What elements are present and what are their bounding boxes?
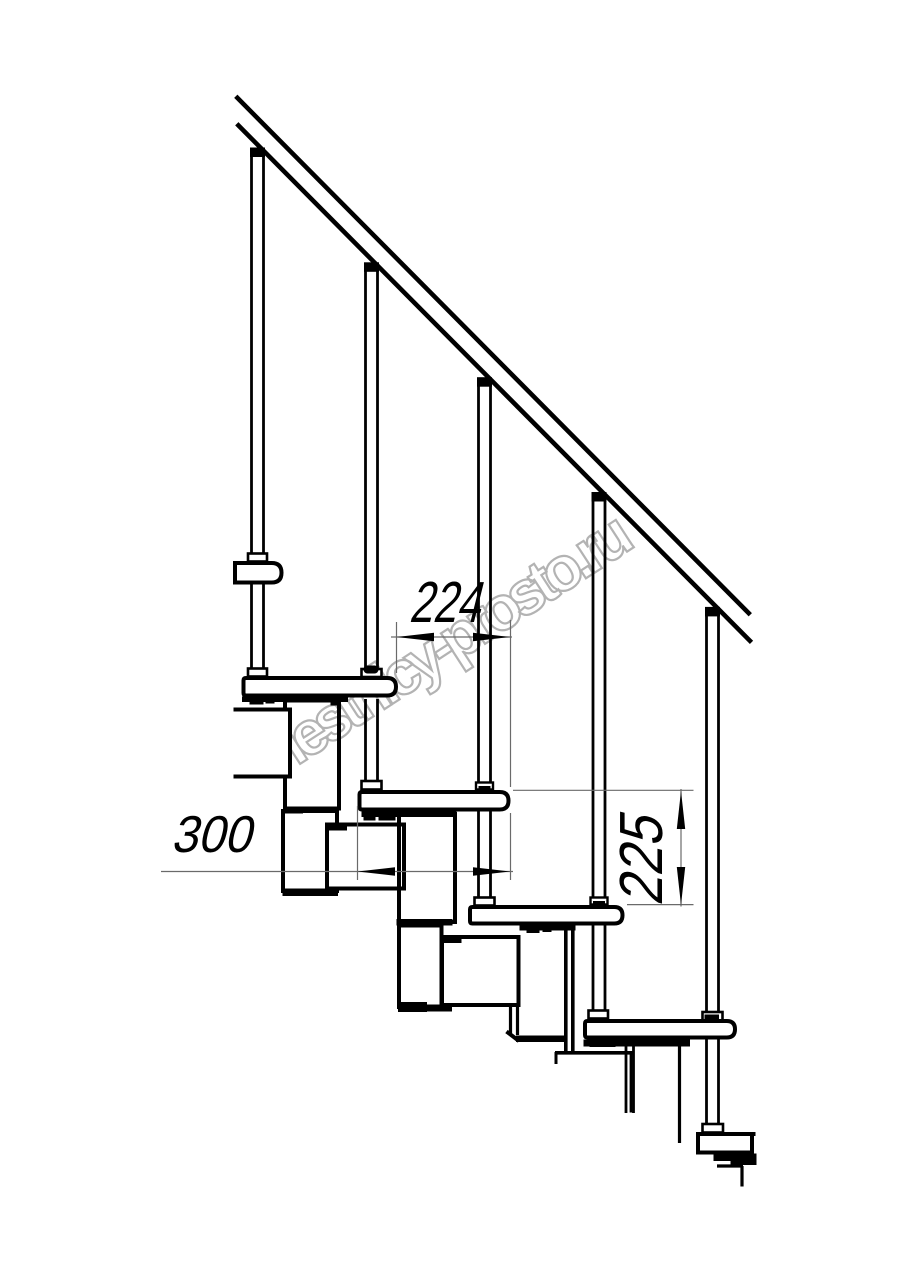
svg-text:300: 300 (168, 805, 262, 863)
svg-text:225: 225 (607, 804, 675, 910)
